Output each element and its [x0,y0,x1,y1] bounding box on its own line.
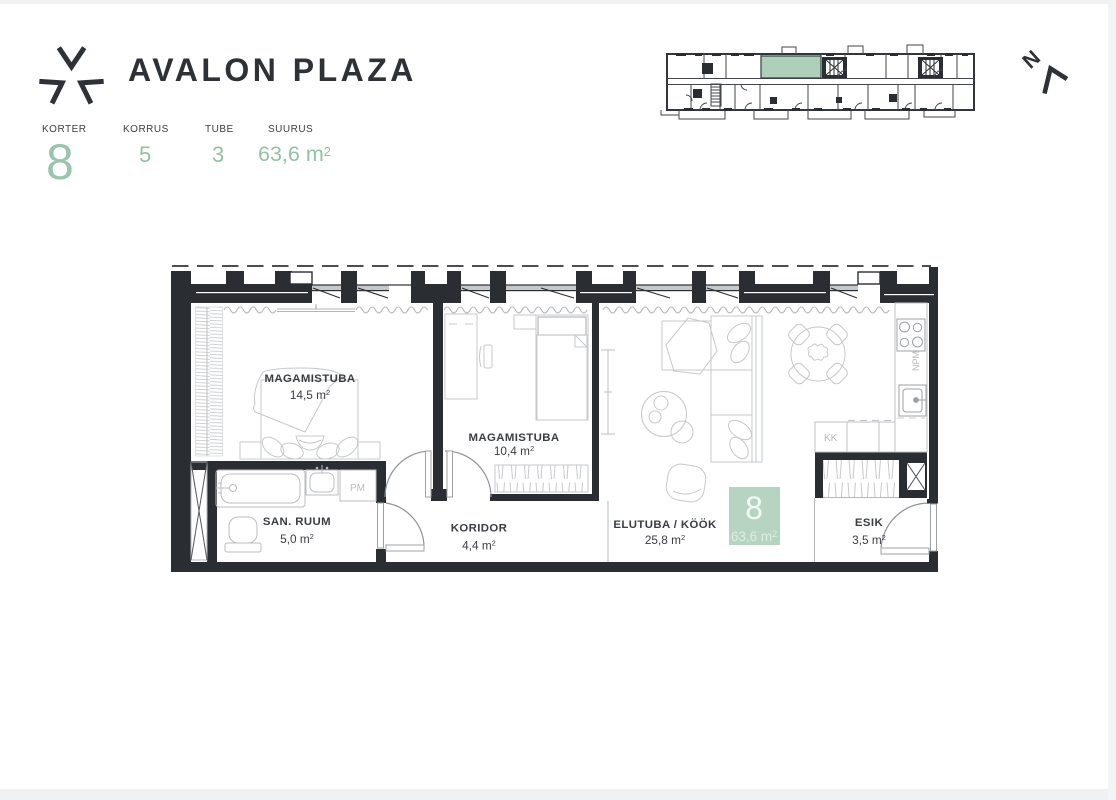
svg-text:PM: PM [350,483,365,494]
svg-text:SAN. RUUM: SAN. RUUM [263,516,331,528]
svg-text:MAGAMISTUBA: MAGAMISTUBA [264,373,355,385]
svg-text:4,4 m2: 4,4 m2 [462,539,496,553]
svg-text:14,5 m2: 14,5 m2 [290,388,330,402]
svg-text:5,0 m2: 5,0 m2 [280,532,314,546]
svg-text:8: 8 [745,490,763,526]
svg-text:3,5 m2: 3,5 m2 [852,533,886,547]
svg-text:KORIDOR: KORIDOR [451,523,508,535]
svg-text:ESIK: ESIK [855,517,884,529]
svg-text:25,8 m2: 25,8 m2 [645,533,685,547]
svg-text:NPM: NPM [911,351,921,371]
svg-text:63,6 m2: 63,6 m2 [731,529,777,544]
svg-text:MAGAMISTUBA: MAGAMISTUBA [468,432,559,444]
svg-text:KK: KK [824,433,838,444]
svg-text:ELUTUBA / KÖÖK: ELUTUBA / KÖÖK [613,518,717,531]
svg-text:10,4 m2: 10,4 m2 [494,444,534,458]
svg-text:N: N [1018,46,1045,73]
